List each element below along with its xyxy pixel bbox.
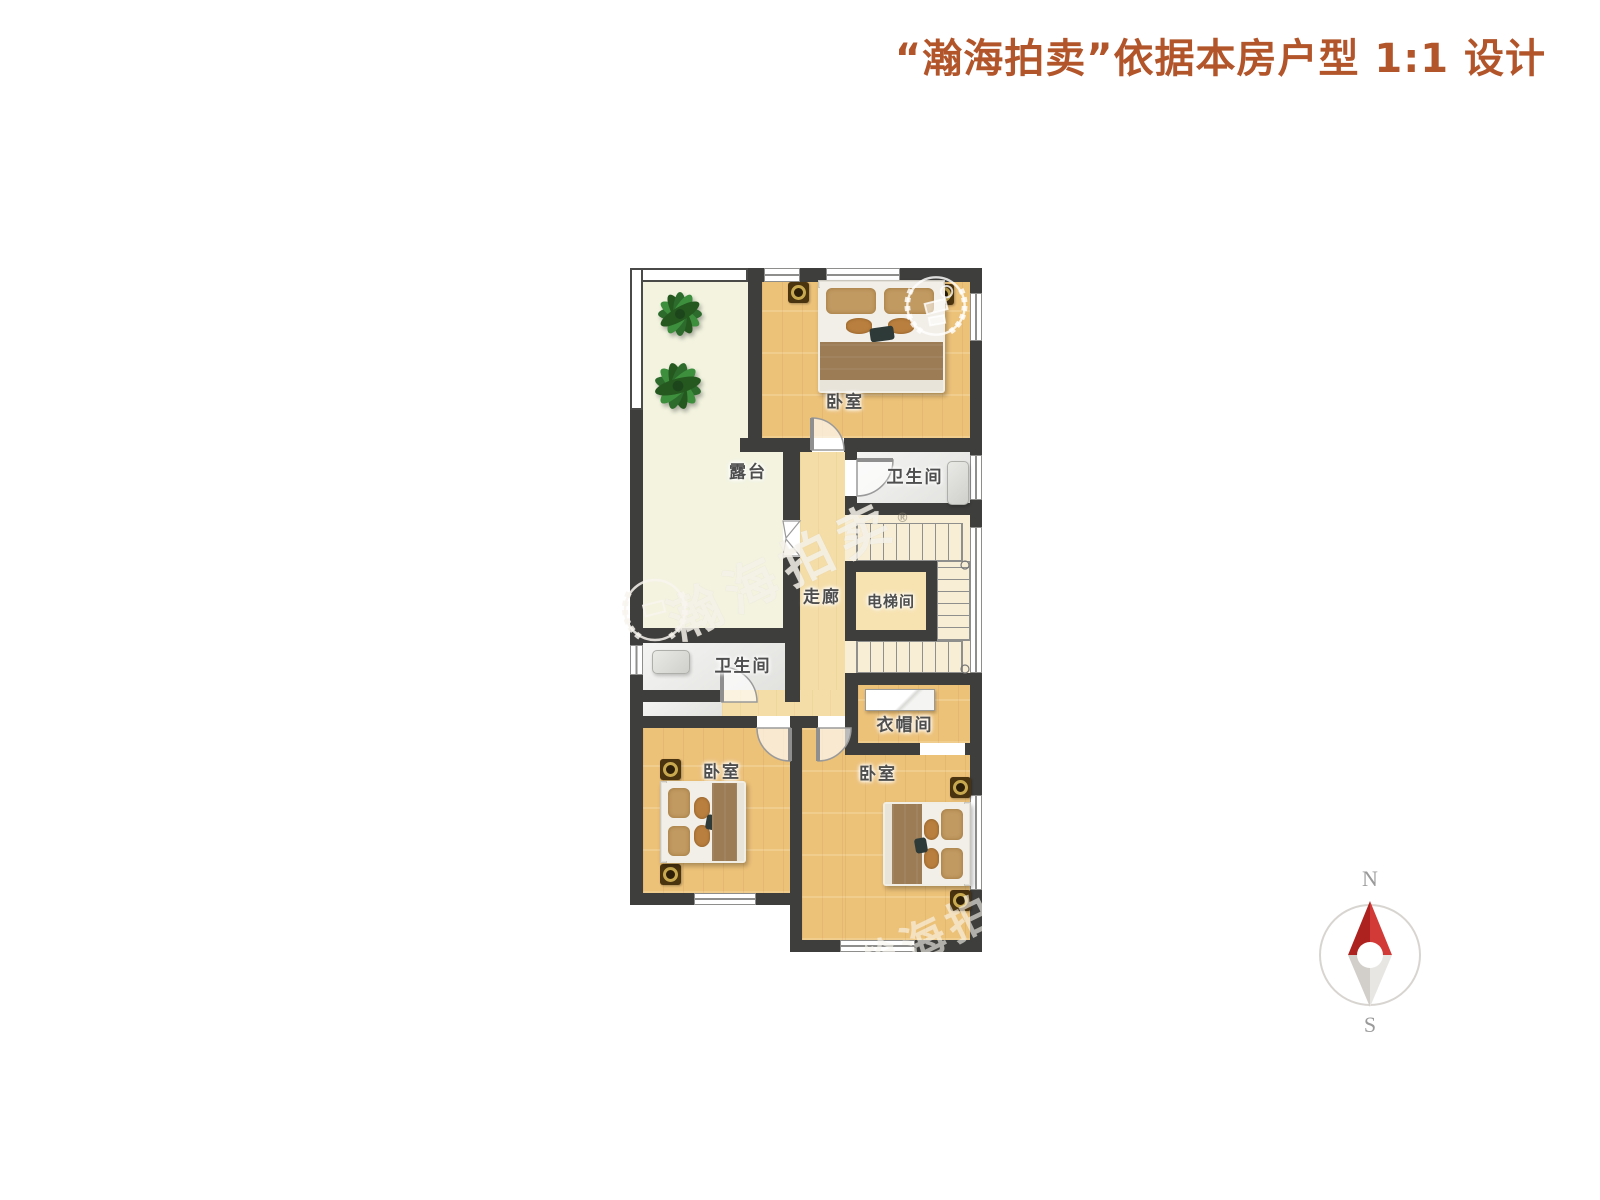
room-label-elevator: 电梯间	[867, 591, 915, 612]
stair-marker	[961, 561, 969, 569]
compass-south-label: S	[1364, 1012, 1376, 1037]
page-title: “瀚海拍卖”依据本房户型 1:1 设计	[895, 26, 1546, 84]
room-label-terrace: 露台	[729, 458, 767, 483]
room-label-bathroom-left: 卫生间	[715, 652, 772, 677]
compass-rose: N S	[1305, 858, 1435, 1038]
stair-marker	[961, 665, 969, 673]
room-label-bedroom-top: 卧室	[826, 388, 864, 413]
laurel-logo-watermark	[893, 263, 979, 349]
door-arc	[812, 418, 844, 450]
folding-door-icon	[783, 521, 800, 538]
room-label-cloakroom: 衣帽间	[877, 711, 934, 736]
page: “瀚海拍卖”依据本房户型 1:1 设计	[0, 0, 1600, 1200]
door-arc	[757, 728, 790, 761]
room-label-bedroom-left: 卧室	[703, 758, 741, 783]
room-label-bedroom-right: 卧室	[859, 760, 897, 785]
compass-hub	[1357, 942, 1383, 968]
room-label-corridor: 走廊	[803, 583, 841, 608]
compass-north-label: N	[1362, 866, 1378, 891]
room-label-bathroom-top: 卫生间	[887, 463, 944, 488]
folding-door-icon	[783, 539, 800, 556]
registered-mark: ®	[896, 511, 909, 526]
laurel-logo-watermark	[610, 565, 700, 655]
door-arc	[818, 728, 851, 761]
floor-plan: 露台 卧室 卫生间 走廊 电梯间 卫生间 衣帽间 卧室 卧室 瀚海拍卖 ®	[630, 265, 982, 952]
